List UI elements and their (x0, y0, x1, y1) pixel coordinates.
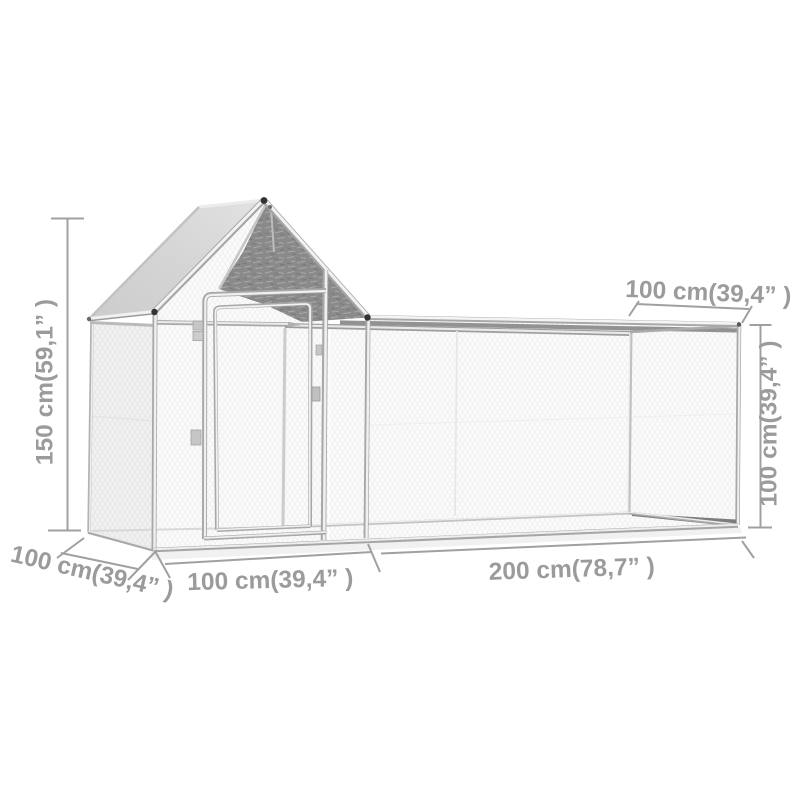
svg-text:100 cm(39,4” ): 100 cm(39,4” ) (187, 565, 354, 596)
svg-text:100 cm(39,4” ): 100 cm(39,4” ) (756, 340, 783, 506)
svg-text:150 cm(59,1” ): 150 cm(59,1” ) (32, 299, 59, 465)
